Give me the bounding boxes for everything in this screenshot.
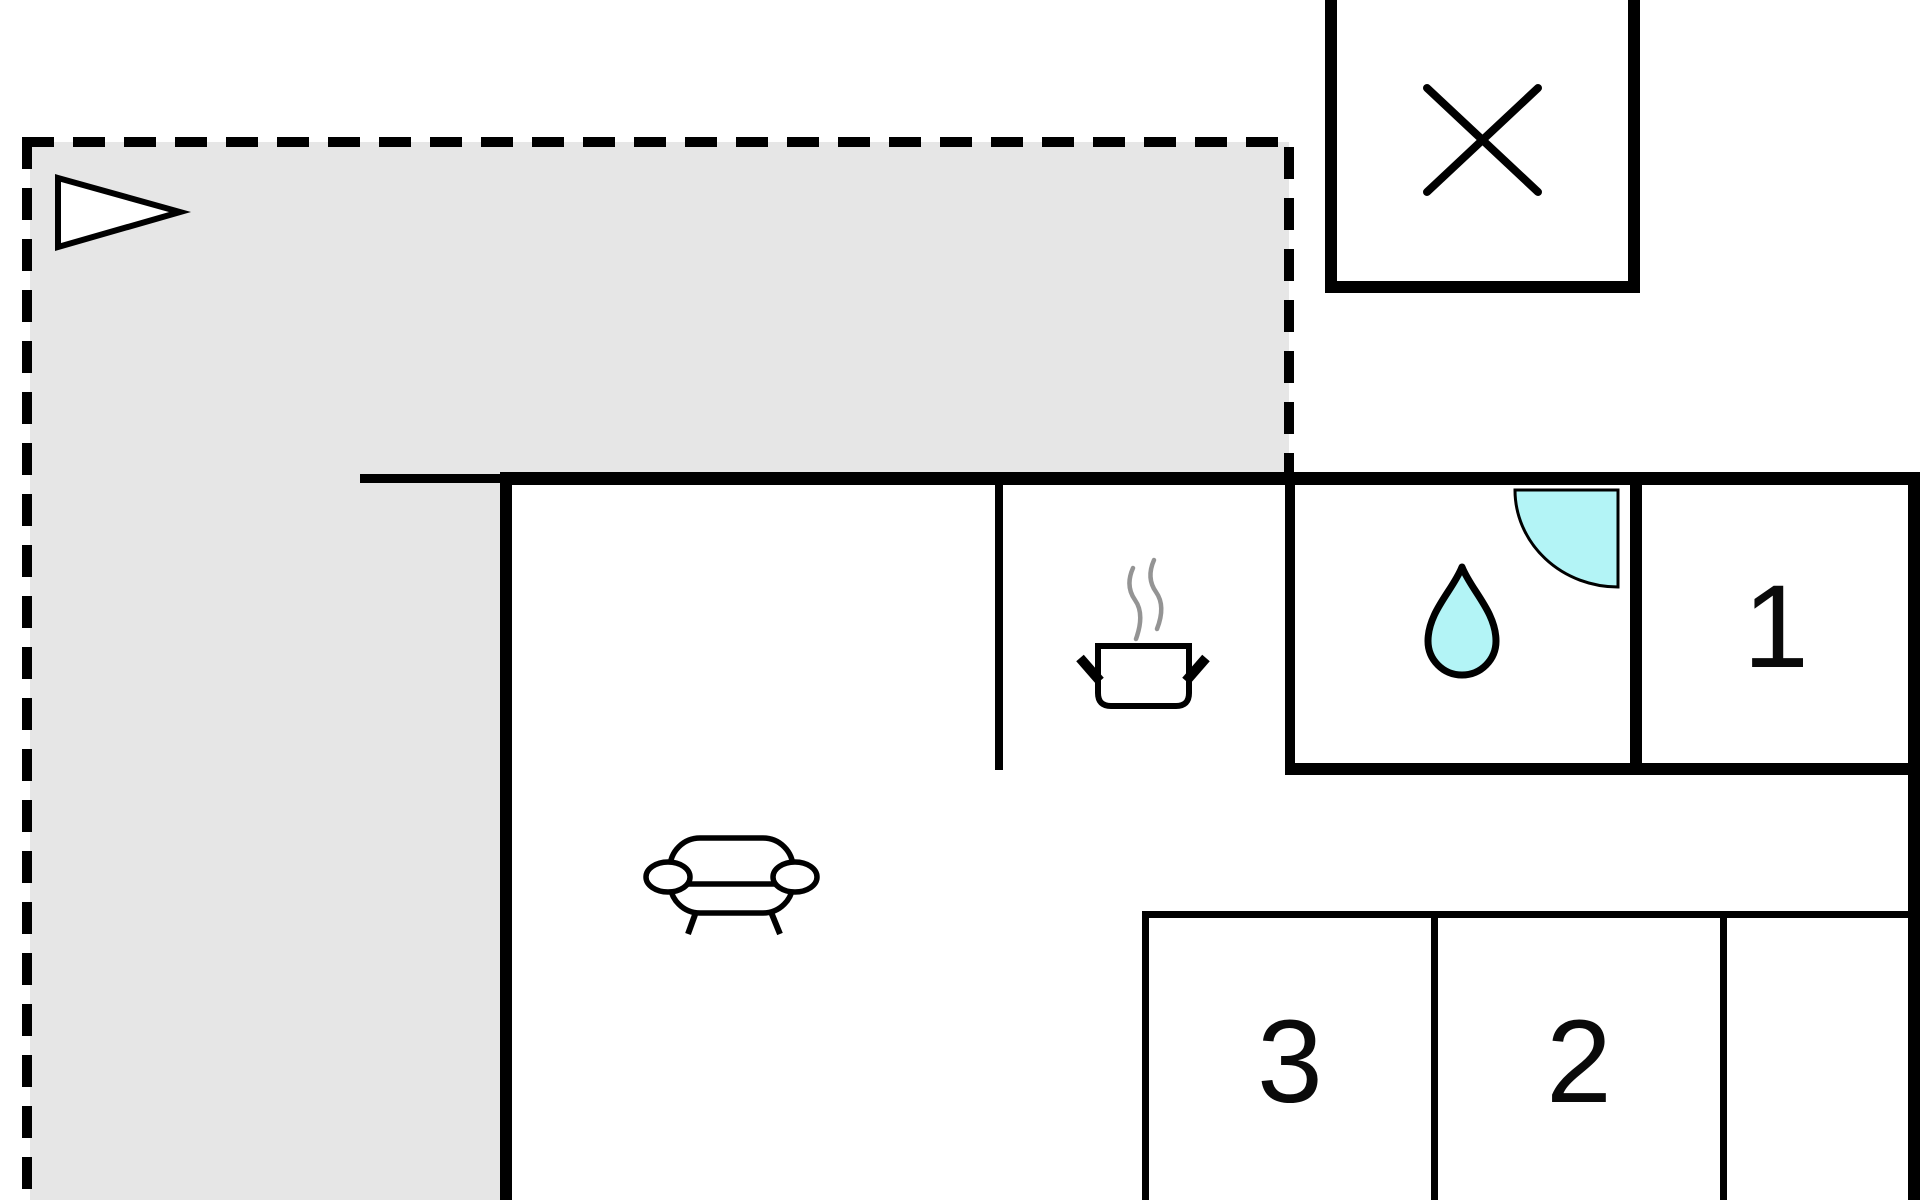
walls [360,472,1920,1200]
room-3-label: 3 [1257,996,1323,1128]
wall-room3-left [1142,911,1149,1200]
room-1-label: 1 [1743,561,1809,693]
wall-room2-right-divider [1720,911,1727,1200]
wall-right-exterior [1908,472,1920,1200]
wall-main-vertical [500,472,512,1200]
sofa-icon [646,838,817,934]
steam-icon [1129,560,1161,639]
cooking-pot-icon [1080,560,1206,706]
floor-plan: 1 3 2 [0,0,1920,1200]
wall-main-horizontal [500,472,1920,485]
x-box [1331,0,1634,287]
wall-rooms-top [1142,911,1920,918]
sofa-leg-right [771,912,780,934]
floor-plan-svg: 1 3 2 [0,0,1920,1200]
wall-bathroom-room1-divider [1630,483,1642,763]
water-drop-icon [1428,567,1496,675]
pot-body [1098,646,1189,706]
wall-kitchen-divider [995,483,1003,770]
wall-room3-room2-divider [1431,911,1438,1200]
wall-ledge-left [360,474,505,483]
sofa-armrest-right [773,862,817,892]
shower-icon [1515,490,1618,587]
wall-bathroom-bottom [1285,763,1920,775]
room-2-label: 2 [1546,996,1612,1128]
sofa-armrest-left [646,862,690,892]
sofa-leg-left [688,912,696,934]
wall-bathroom-left [1285,483,1295,775]
